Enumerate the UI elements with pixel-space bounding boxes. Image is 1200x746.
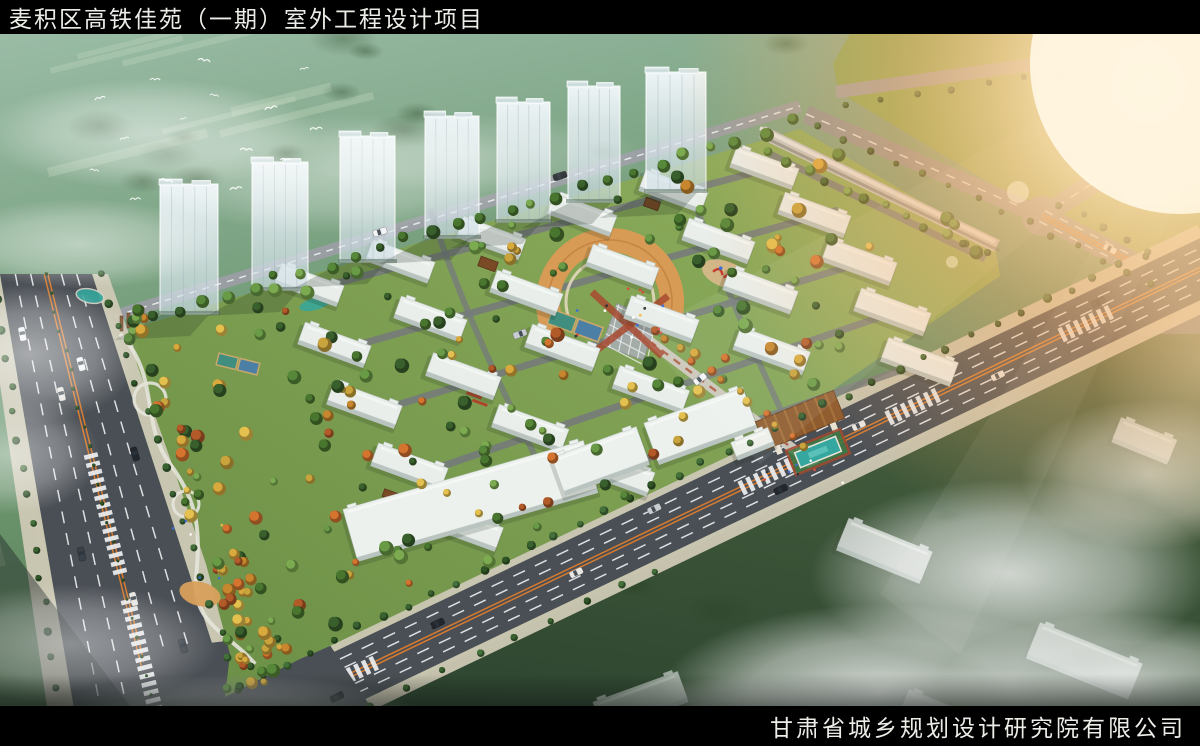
title-bar: 麦积区高铁佳苑（一期）室外工程设计项目 <box>0 0 1200 34</box>
footer-bar: 甘肃省城乡规划设计研究院有限公司 <box>0 706 1200 746</box>
rendering-area <box>0 34 1200 706</box>
presentation-board: 麦积区高铁佳苑（一期）室外工程设计项目 <box>0 0 1200 746</box>
project-title: 麦积区高铁佳苑（一期）室外工程设计项目 <box>0 0 484 34</box>
company-name: 甘肃省城乡规划设计研究院有限公司 <box>770 709 1200 743</box>
site-plan-rendering <box>0 34 1200 706</box>
